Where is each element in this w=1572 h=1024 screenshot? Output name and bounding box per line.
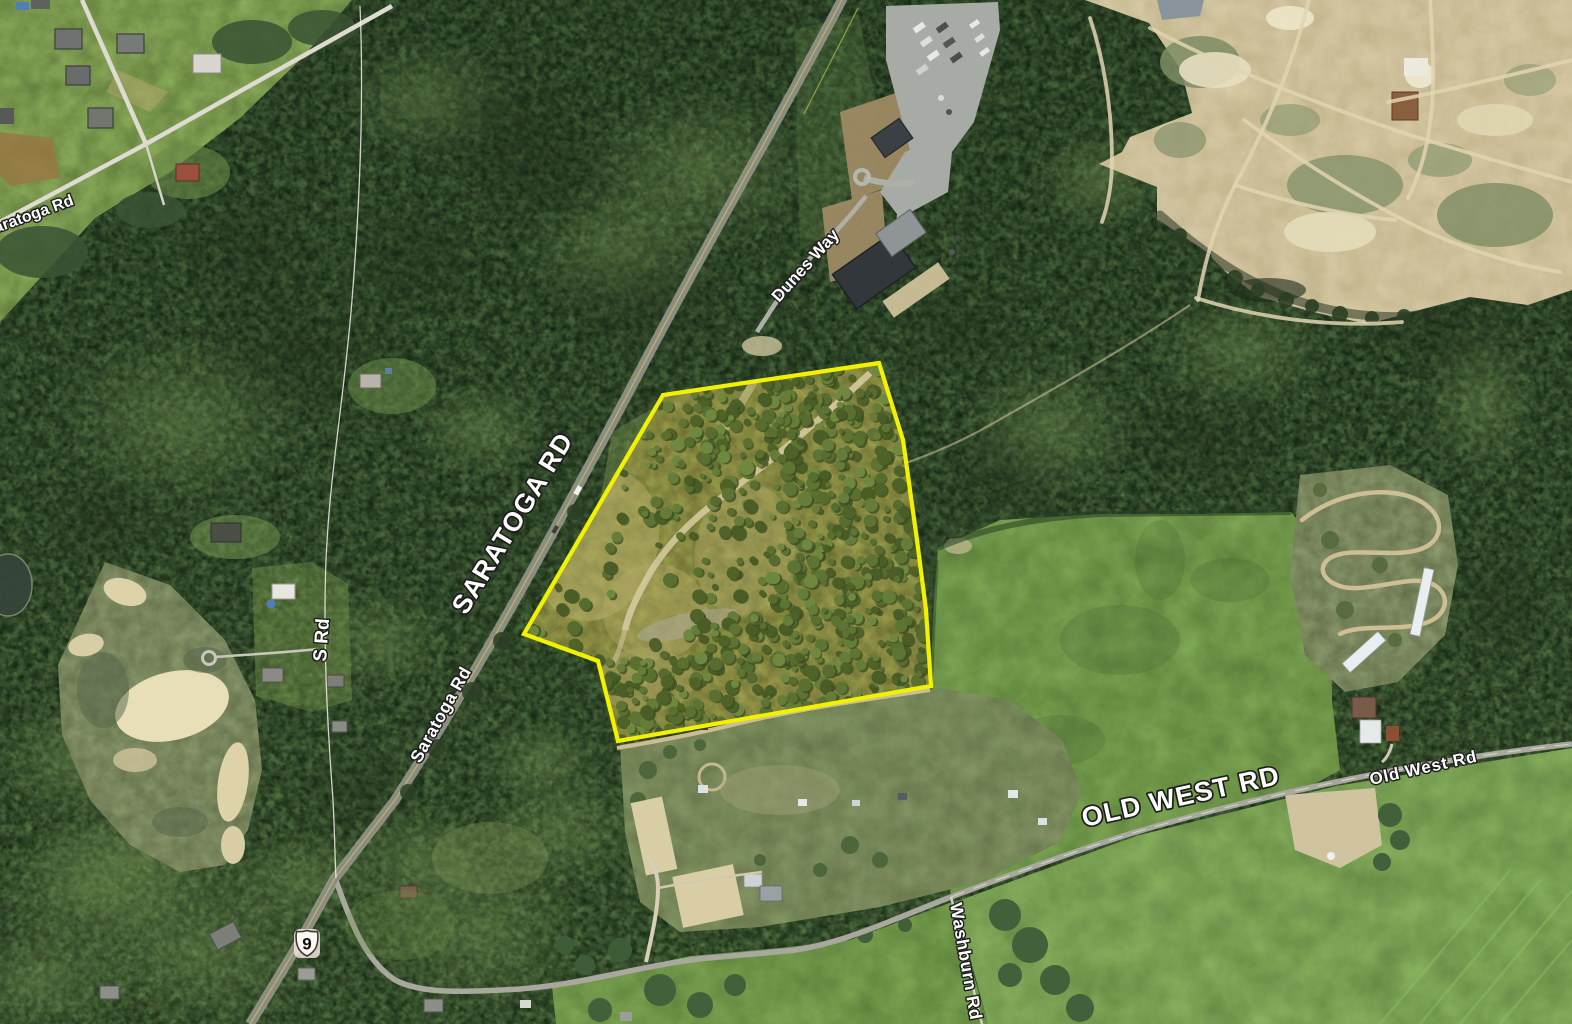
svg-text:S Rd: S Rd — [310, 618, 334, 663]
svg-text:9: 9 — [302, 935, 311, 954]
